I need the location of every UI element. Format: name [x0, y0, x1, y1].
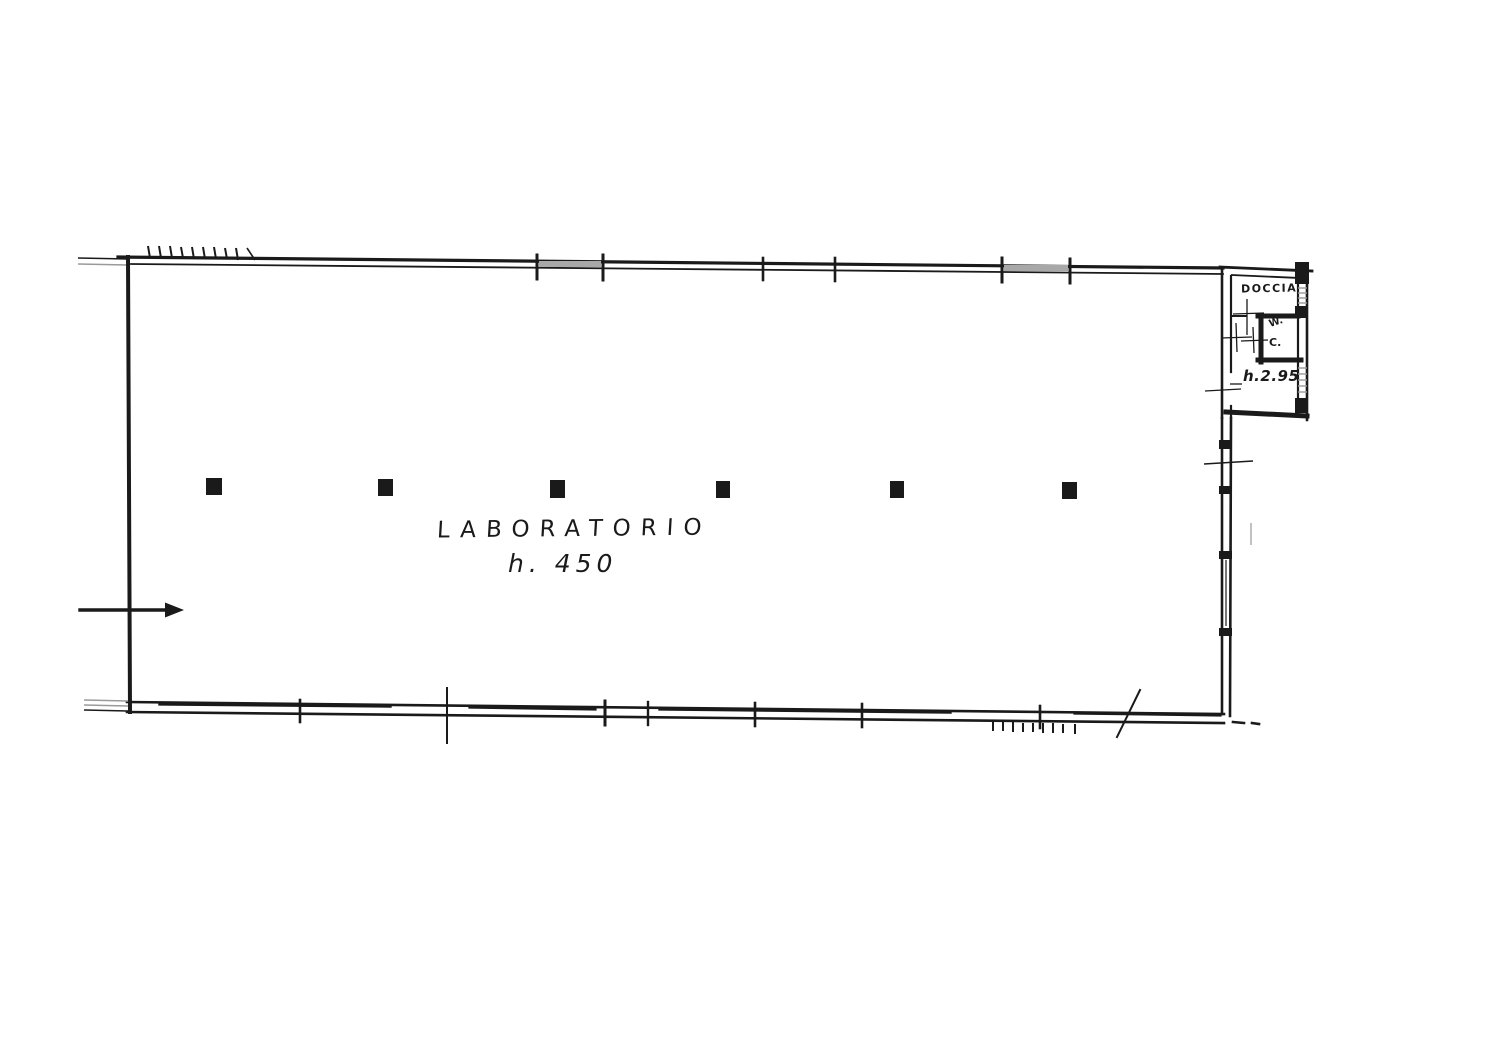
column-pillar	[378, 479, 393, 496]
shower-room-label: DOCCIA	[1241, 282, 1297, 296]
pillar-row	[206, 478, 1077, 499]
column-pillar	[716, 481, 730, 498]
wc-label-line2: C.	[1269, 336, 1281, 349]
main-room-label: LABORATORIO	[436, 515, 712, 544]
column-pillar	[550, 480, 565, 498]
bathroom-height-label: h.2.95	[1243, 367, 1299, 385]
main-room-height-label: h. 450	[508, 549, 617, 578]
column-pillar	[890, 481, 904, 498]
bottom-right-hatching	[993, 722, 1075, 734]
floor-plan-drawing	[0, 0, 1500, 1060]
column-pillar	[1062, 482, 1077, 499]
floor-plan-canvas: LABORATORIO h. 450 DOCCIA W. C. h.2.95	[0, 0, 1500, 1060]
top-wall	[78, 255, 1223, 283]
column-pillar	[206, 478, 222, 495]
right-wall	[1204, 418, 1253, 716]
annex-dimension-marks	[1205, 384, 1242, 391]
entrance-arrow	[80, 603, 184, 618]
bottom-wall	[84, 688, 1259, 743]
left-wall	[128, 257, 130, 712]
